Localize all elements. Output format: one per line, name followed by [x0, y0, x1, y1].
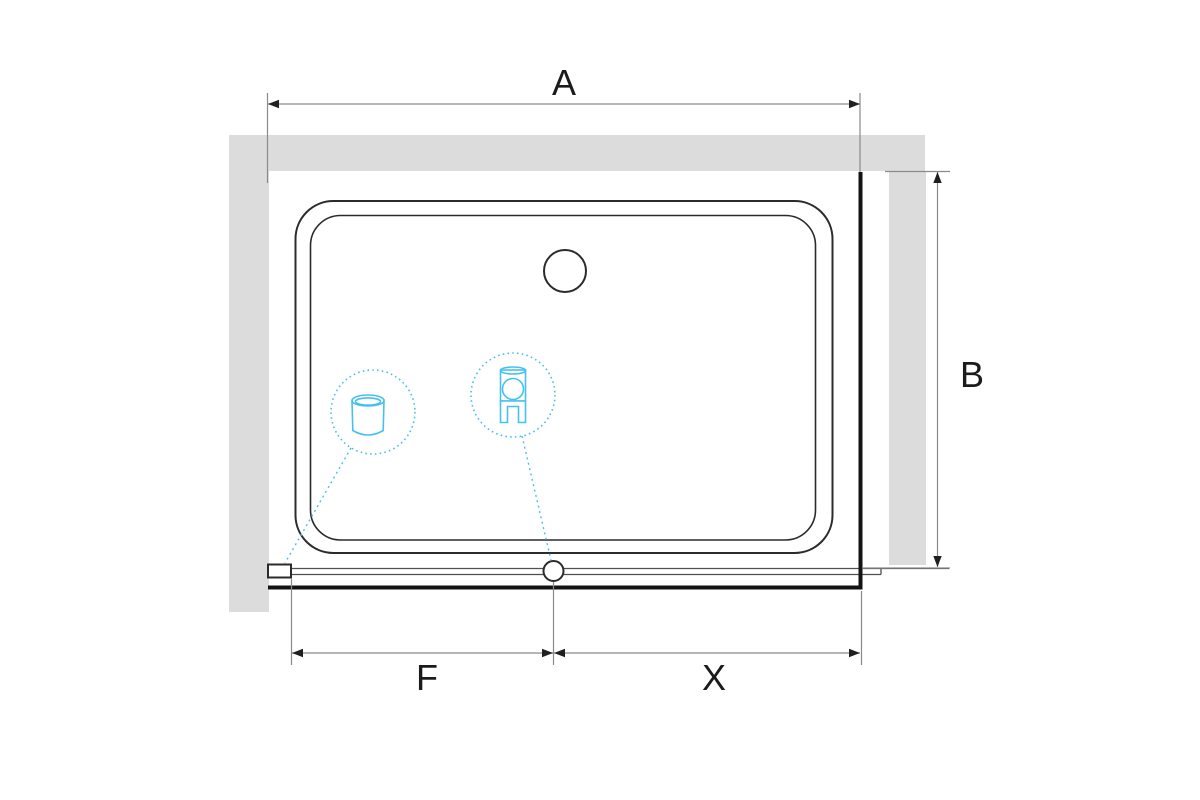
- door-track: [291, 569, 949, 575]
- drain-circle: [544, 250, 586, 292]
- waste-cylinder-icon: [352, 395, 384, 435]
- wall-left: [229, 135, 269, 612]
- dim-a-arrow-right: [849, 100, 860, 108]
- dim-f-arrow-left: [292, 649, 303, 657]
- dim-b-label: B: [960, 354, 984, 395]
- shower-tray: [296, 201, 833, 553]
- roller-circle: [544, 561, 564, 581]
- dim-x-label: X: [702, 657, 726, 698]
- dim-f-arrow-right: [542, 649, 553, 657]
- dim-b-arrow-top: [933, 172, 941, 183]
- dim-b-arrow-bottom: [933, 556, 941, 567]
- dimension-x: X: [554, 591, 862, 698]
- dim-x-arrow-right: [849, 649, 860, 657]
- dim-a-arrow-left: [268, 100, 279, 108]
- dimension-f: F: [292, 578, 554, 698]
- dim-a-label: A: [552, 62, 576, 103]
- wall-profile: [268, 565, 291, 578]
- dim-x-arrow-left: [554, 649, 565, 657]
- wall-top: [231, 135, 925, 171]
- shower-enclosure-diagram: A B F X: [0, 0, 1200, 800]
- wall-right: [889, 171, 926, 565]
- dim-f-label: F: [416, 657, 438, 698]
- technical-drawing-canvas: A B F X: [0, 0, 1200, 800]
